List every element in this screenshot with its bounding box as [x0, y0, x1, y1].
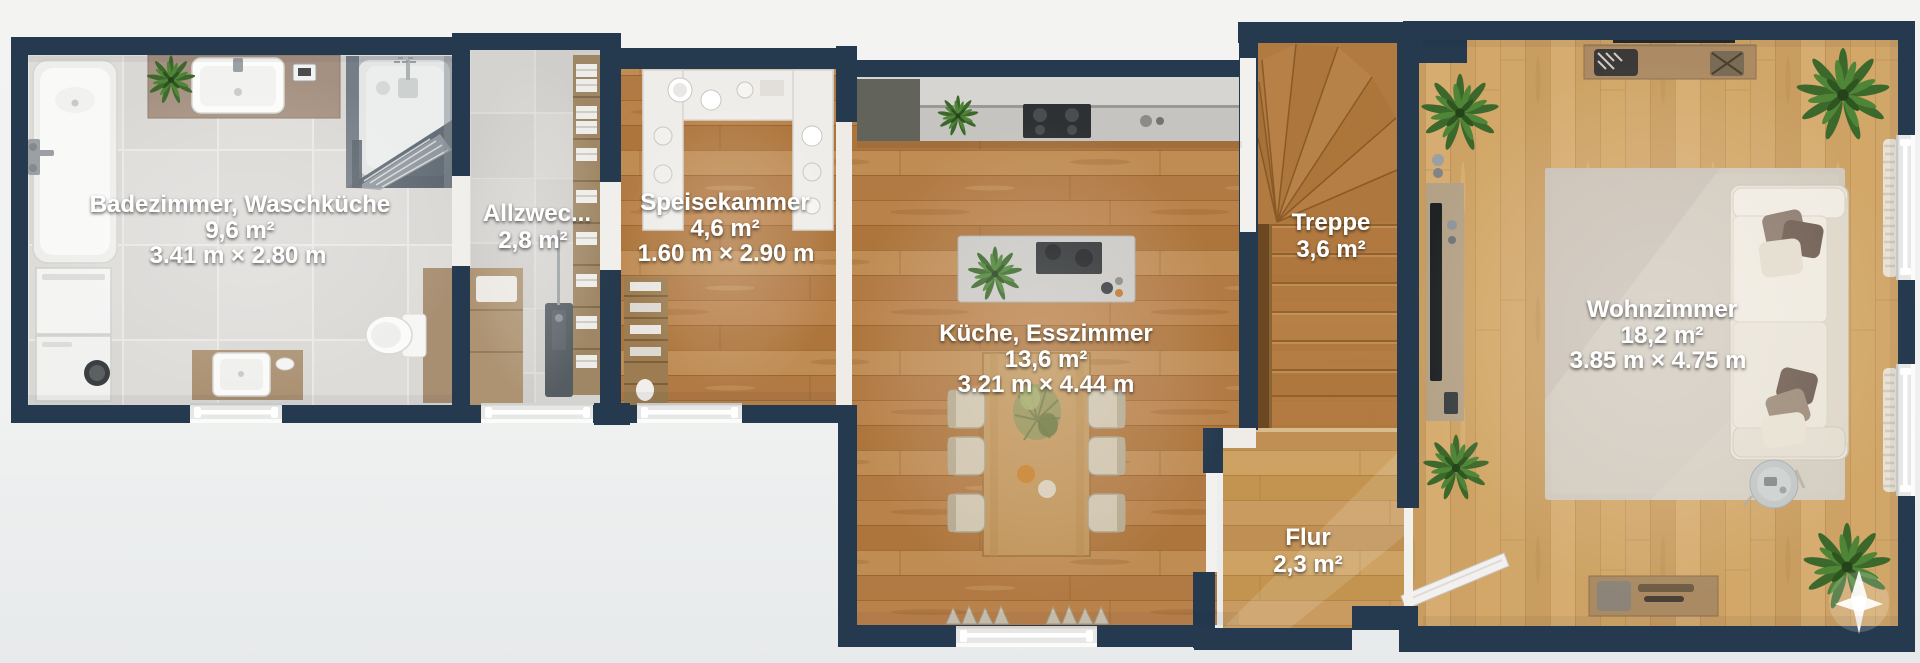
svg-text:Wohnzimmer: Wohnzimmer [1587, 296, 1737, 323]
svg-text:3.85 m × 4.75 m: 3.85 m × 4.75 m [1570, 347, 1747, 374]
svg-text:2,8 m²: 2,8 m² [498, 227, 567, 254]
svg-text:3.21 m × 4.44 m: 3.21 m × 4.44 m [958, 371, 1135, 398]
svg-text:1.60 m × 2.90 m: 1.60 m × 2.90 m [638, 240, 815, 267]
svg-text:Speisekammer: Speisekammer [640, 189, 809, 216]
svg-text:4,6 m²: 4,6 m² [690, 215, 759, 242]
svg-text:Allzwec...: Allzwec... [483, 200, 591, 227]
svg-text:13,6 m²: 13,6 m² [1005, 346, 1088, 373]
svg-text:18,2 m²: 18,2 m² [1621, 322, 1704, 349]
svg-text:2,3 m²: 2,3 m² [1273, 551, 1342, 578]
svg-text:3,6 m²: 3,6 m² [1296, 236, 1365, 263]
svg-text:Flur: Flur [1285, 524, 1330, 551]
svg-text:3.41 m × 2.80 m: 3.41 m × 2.80 m [150, 242, 327, 269]
svg-text:Treppe: Treppe [1292, 209, 1371, 236]
svg-text:9,6 m²: 9,6 m² [205, 217, 274, 244]
svg-text:Küche, Esszimmer: Küche, Esszimmer [939, 320, 1152, 347]
svg-text:Badezimmer, Waschküche: Badezimmer, Waschküche [90, 191, 391, 218]
